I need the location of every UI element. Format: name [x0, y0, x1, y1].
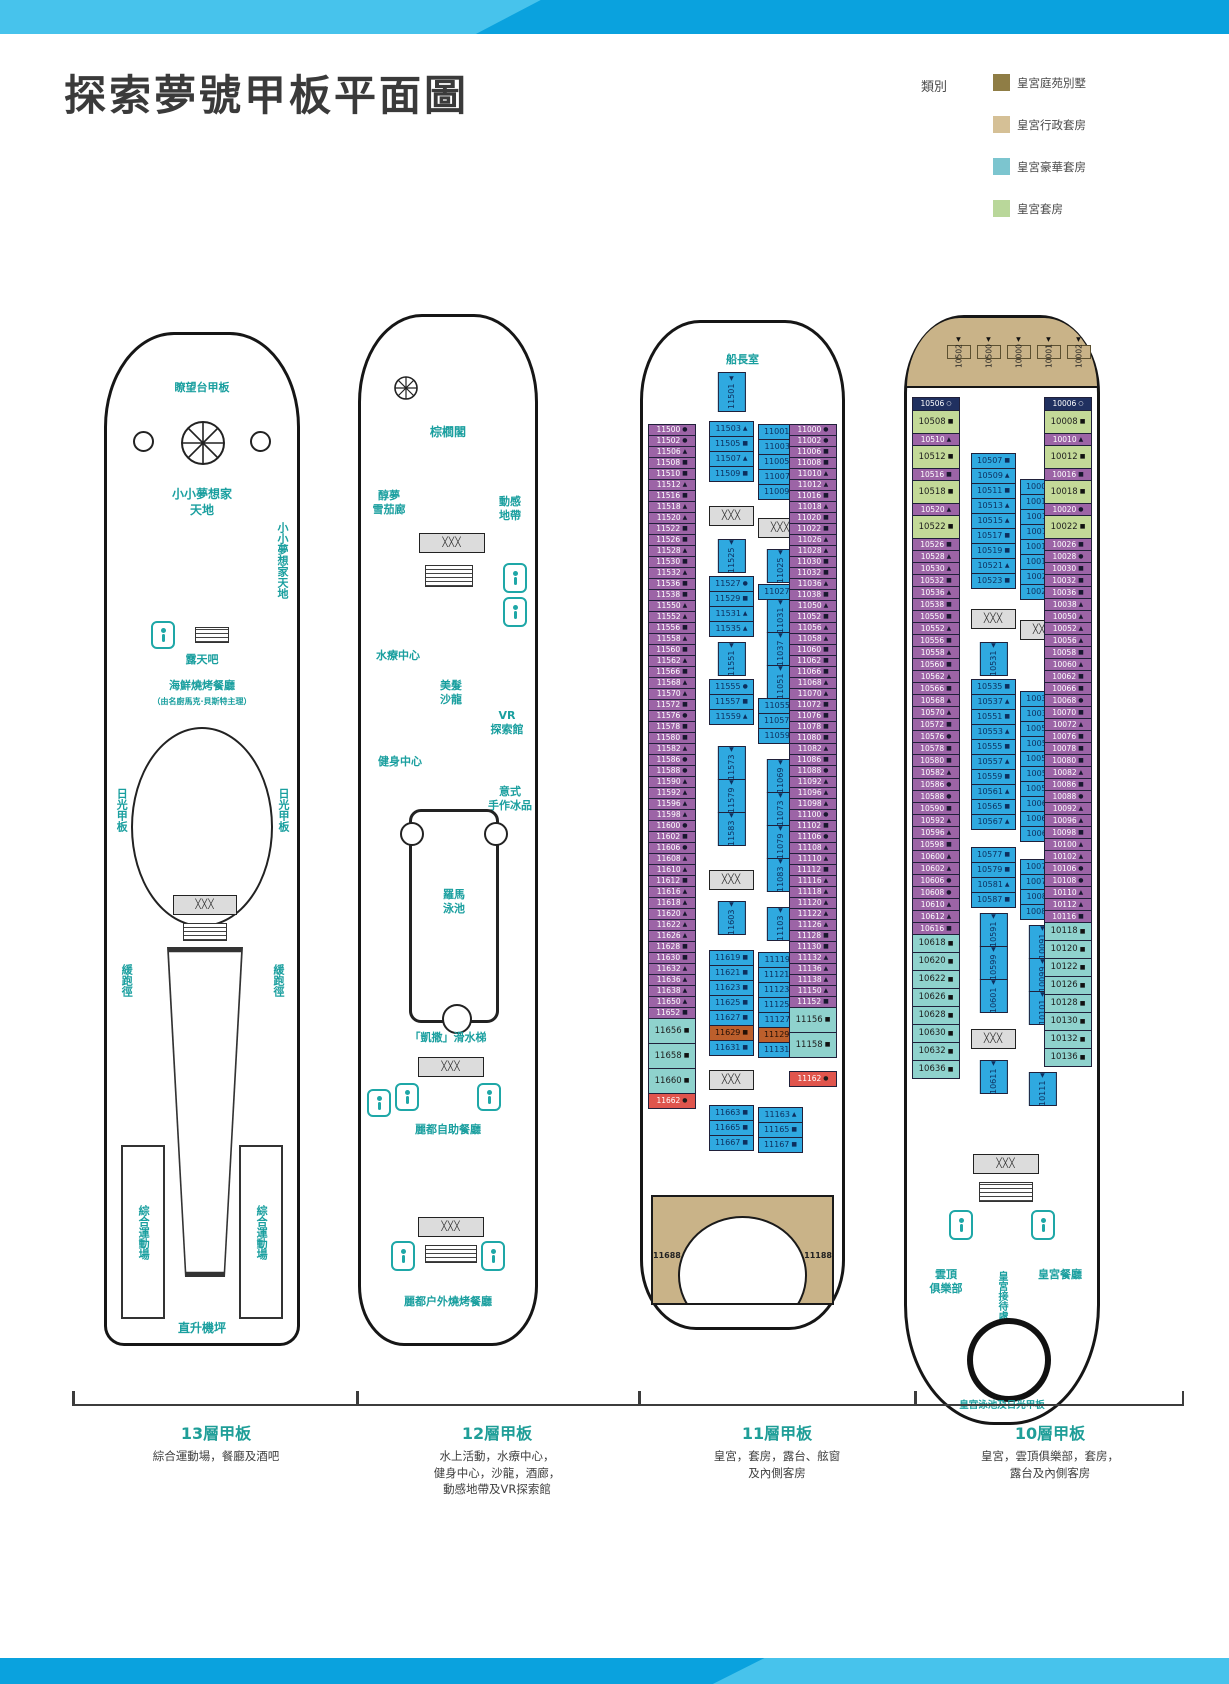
cabin-10591: 10591▲	[980, 913, 1008, 947]
cabin-number: 11163	[764, 1111, 789, 1119]
cabin-number: 11623	[715, 984, 740, 992]
cabin-number: 11612	[656, 877, 680, 885]
occupancy-symbol: ■	[823, 757, 829, 763]
helipad-label: 直升機坪	[107, 1321, 297, 1337]
cabin-number: 11600	[656, 822, 680, 830]
occupancy-symbol: ■	[1004, 548, 1010, 554]
genting-club-label: 雲頂 俱樂部	[917, 1268, 975, 1297]
cabin-11583: 11583▲	[718, 812, 746, 846]
occupancy-symbol: ■	[823, 823, 829, 829]
cabin-number: 10636	[919, 1065, 946, 1074]
occupancy-symbol: ▲	[824, 955, 829, 961]
occupancy-symbol: ●	[743, 581, 748, 587]
cabin-10507: 10507■	[971, 453, 1016, 469]
occupancy-symbol: ■	[823, 702, 829, 708]
captain-quarters-label: 船長室	[643, 353, 842, 367]
occupancy-symbol: ▲	[824, 900, 829, 906]
cabin-11656: 11656■	[648, 1018, 696, 1044]
sports-court-port: 綜合運動場	[121, 1145, 165, 1319]
occupancy-symbol: ▲	[1005, 503, 1010, 509]
occupancy-symbol: ■	[946, 638, 952, 644]
cabin-number: 10518	[919, 488, 946, 497]
cabin-number: 11505	[715, 440, 740, 448]
occupancy-symbol: ○	[946, 401, 951, 407]
occupancy-symbol: ●	[1078, 866, 1083, 872]
cabin-number: 11028	[798, 547, 822, 555]
occupancy-symbol: ▲	[743, 626, 748, 632]
palace-pool-outline	[967, 1318, 1051, 1402]
cabin-number: 11072	[797, 701, 821, 709]
cabin-number: 10068	[1052, 697, 1076, 705]
legend-swatch-villa	[993, 74, 1010, 91]
occupancy-symbol: ▲	[1079, 626, 1084, 632]
cabin-number: 11582	[657, 745, 681, 753]
cabin-number: 10535	[977, 683, 1002, 691]
occupancy-symbol: ●	[823, 812, 828, 818]
occupancy-symbol: ■	[823, 614, 829, 620]
cabin-11525: 11525▲	[718, 539, 746, 573]
occupancy-symbol: ■	[742, 471, 748, 477]
cabin-number: 11120	[798, 899, 822, 907]
cabin-number: 10102	[1053, 853, 1077, 861]
legend-swatch-palace-suite	[993, 200, 1010, 217]
occupancy-symbol: ■	[946, 472, 952, 478]
occupancy-symbol: ▲	[777, 858, 783, 865]
cabin-10515: 10515▲	[971, 513, 1016, 529]
occupancy-symbol: ■	[1078, 686, 1084, 692]
cabin-number: 10050	[1053, 613, 1077, 621]
occupancy-symbol: ■	[1078, 578, 1084, 584]
cabin-number: 11573	[727, 755, 735, 780]
cabin-number: 10520	[921, 506, 945, 514]
cabin-number: 11088	[797, 767, 821, 775]
occupancy-symbol: ▲	[947, 437, 952, 443]
compass-icon	[179, 419, 227, 467]
cabin-number: 10508	[919, 418, 946, 427]
cabin-number: 10076	[1052, 733, 1076, 741]
roman-pool-outline: 羅馬 泳池	[409, 809, 499, 1023]
cabin-10130: 10130■	[1044, 1012, 1092, 1031]
cabin-number: 11555	[715, 683, 740, 691]
cabin-number: 10112	[1053, 901, 1077, 909]
cabin-number: 11138	[798, 976, 822, 984]
occupancy-symbol: ▲	[1079, 806, 1084, 812]
cabin-number: 11055	[764, 702, 789, 710]
cabin-number: 11658	[655, 1052, 682, 1061]
occupancy-symbol: ■	[742, 1000, 748, 1006]
occupancy-symbol: ▲	[728, 642, 734, 649]
occupancy-symbol: ■	[682, 537, 688, 543]
cabin-number: 10580	[920, 757, 944, 765]
cabin-number: 10012	[1051, 453, 1078, 462]
cabin-number: 11073	[776, 801, 784, 826]
accessible-restroom-icon	[477, 1083, 501, 1111]
cabin-number: 10590	[920, 805, 944, 813]
legend-item: 皇宮豪華套房	[993, 158, 1086, 175]
cabin-11165: 11165■	[758, 1122, 803, 1138]
stairs	[195, 627, 229, 643]
occupancy-symbol: ●	[682, 427, 687, 433]
occupancy-symbol: ●	[1078, 878, 1083, 884]
cabin-number: 10606	[920, 877, 944, 885]
occupancy-symbol: ▲	[683, 922, 688, 928]
cabin-number: 10632	[919, 1047, 946, 1056]
occupancy-symbol: ●	[682, 845, 687, 851]
cabin-number: 11586	[656, 756, 680, 764]
cabin-number: 10530	[921, 565, 945, 573]
occupancy-symbol: ■	[1004, 804, 1010, 810]
cabin-number: 10066	[1052, 685, 1076, 693]
occupancy-symbol: ▲	[947, 650, 952, 656]
cabin-number: 10512	[919, 453, 946, 462]
occupancy-symbol: ▲	[990, 1060, 996, 1067]
cabin-number: 11008	[797, 459, 821, 467]
cabin-number: 11076	[797, 712, 821, 720]
occupancy-symbol: ▲	[683, 482, 688, 488]
occupancy-symbol: ▲	[824, 977, 829, 983]
occupancy-symbol: ▲	[683, 636, 688, 642]
occupancy-symbol: ▲	[1079, 602, 1084, 608]
deck-12-name: 12層甲板	[434, 1420, 561, 1444]
occupancy-symbol: ■	[1078, 734, 1084, 740]
cabin-number: 11125	[764, 1001, 789, 1009]
corridor-gap	[971, 830, 1016, 848]
occupancy-symbol: ■	[948, 1049, 954, 1055]
occupancy-symbol: ■	[946, 842, 952, 848]
occupancy-symbol: ■	[948, 454, 954, 460]
cabin-number: 10611	[989, 1069, 997, 1094]
corridor-gap	[971, 418, 1016, 454]
cabin-number: 10538	[920, 601, 944, 609]
occupancy-symbol: ▲	[947, 902, 952, 908]
occupancy-symbol: ▲	[683, 614, 688, 620]
cabin-number: 10528	[921, 553, 945, 561]
occupancy-symbol: ■	[823, 669, 829, 675]
cabin-number: 10082	[1053, 769, 1077, 777]
cabin-number: 11100	[797, 811, 821, 819]
occupancy-symbol: ▲	[990, 946, 996, 953]
cabin-number: 10132	[1051, 1035, 1078, 1044]
top-brand-band	[0, 0, 1229, 34]
jogging-track-label-starboard: 緩跑徑	[271, 935, 285, 1025]
occupancy-symbol: ■	[823, 933, 829, 939]
cabin-number: 11009	[764, 488, 789, 496]
roman-pool-label: 羅馬 泳池	[412, 888, 496, 917]
occupancy-symbol: ■	[823, 559, 829, 565]
cabin-11527: 11527●	[709, 576, 754, 592]
occupancy-symbol: ●	[1078, 698, 1083, 704]
cabin-number: 10056	[1053, 637, 1077, 645]
cabin-10120: 10120■	[1044, 940, 1092, 959]
occupancy-symbol: ■	[1004, 533, 1010, 539]
occupancy-symbol: ▲	[777, 549, 783, 556]
occupancy-symbol: ▲	[1016, 335, 1022, 342]
deck11-inner-port-cabin-column: 11501▲11503▲11505■11507▲11509■╳╳╳11525▲1…	[709, 373, 754, 1151]
cabin-number: 11022	[797, 525, 821, 533]
occupancy-symbol: ■	[1080, 965, 1086, 971]
occupancy-symbol: ●	[1078, 507, 1083, 513]
spa-label: 水療中心	[367, 649, 429, 663]
cabin-number: 11606	[656, 844, 680, 852]
cabin-number: 10601	[989, 988, 997, 1013]
occupancy-symbol: ▲	[824, 845, 829, 851]
legend-swatch-deluxe-suite	[993, 158, 1010, 175]
cabin-number: 10010	[1053, 436, 1077, 444]
cabin-10136: 10136■	[1044, 1048, 1092, 1067]
occupancy-symbol: ▲	[990, 642, 996, 649]
cabin-number: 10018	[1051, 488, 1078, 497]
cabin-11156: 11156■	[789, 1007, 837, 1033]
cabin-number: 11025	[776, 558, 784, 583]
occupancy-symbol: ▲	[1079, 854, 1084, 860]
occupancy-symbol: ▲	[683, 889, 688, 895]
occupancy-symbol: ■	[948, 1013, 954, 1019]
restroom-icon	[151, 621, 175, 649]
cabin-10599: 10599▲	[980, 946, 1008, 980]
occupancy-symbol: ▲	[947, 914, 952, 920]
occupancy-symbol: ▲	[947, 854, 952, 860]
caesar-slide-label: 「凱撒」滑水梯	[361, 1031, 535, 1045]
cabin-number: 11150	[798, 987, 822, 995]
corridor-gap	[789, 1058, 837, 1072]
cabin-10553: 10553▲	[971, 724, 1016, 740]
cabin-number: 10116	[1052, 913, 1076, 921]
cabin-number: 11526	[656, 536, 680, 544]
cabin-number: 11102	[797, 822, 821, 830]
cabin-number: 10110	[1053, 889, 1077, 897]
occupancy-symbol: ■	[742, 699, 748, 705]
cabin-number: 11152	[797, 998, 821, 1006]
cabin-number: 11116	[798, 877, 822, 885]
deck11-starboard-cabin-column: 11000●11002●11006■11008■11010▲11012▲1101…	[789, 425, 837, 1087]
cabin-11531: 11531▲	[709, 606, 754, 622]
cabin-number: 10062	[1052, 673, 1076, 681]
cabin-11665: 11665■	[709, 1120, 754, 1136]
cabin-number: 10586	[920, 781, 944, 789]
cabin-number: 10122	[1051, 963, 1078, 972]
cabin-number: 11508	[656, 459, 680, 467]
occupancy-symbol: ■	[742, 985, 748, 991]
cabin-number: 11501	[727, 384, 735, 409]
palm-court-label: 棕櫚閣	[361, 425, 535, 441]
cabin-number: 11566	[656, 668, 680, 676]
cabin-number: 11656	[655, 1027, 682, 1036]
occupancy-symbol: ■	[1004, 458, 1010, 464]
cabin-10518: 10518■	[912, 480, 960, 504]
legend-item-label: 皇宮庭苑別墅	[1017, 75, 1086, 91]
occupancy-symbol: ●	[946, 782, 951, 788]
occupancy-symbol: ▲	[743, 714, 748, 720]
occupancy-symbol: ▲	[777, 632, 783, 639]
cabin-number: 11660	[655, 1077, 682, 1086]
cabin-number: 11052	[797, 613, 821, 621]
occupancy-symbol: ▲	[1079, 662, 1084, 668]
stern-cabin-label: 11688	[653, 1251, 681, 1260]
open-air-bar-label: 露天吧	[107, 653, 297, 667]
cabin-10555: 10555■	[971, 739, 1016, 755]
cabin-number: 11056	[798, 624, 822, 632]
cabin-number: 11650	[657, 998, 681, 1006]
occupancy-symbol: ●	[823, 427, 828, 433]
deck-13-caption: 13層甲板 綜合運動場，餐廳及酒吧	[153, 1420, 280, 1465]
cabin-10513: 10513▲	[971, 498, 1016, 514]
cabin-number: 10008	[1051, 418, 1078, 427]
cabin-number: 10592	[921, 817, 945, 825]
gym-label: 健身中心	[367, 755, 433, 769]
occupancy-symbol: ■	[742, 1030, 748, 1036]
cabin-number: 11559	[715, 713, 740, 721]
cabin-number: 10526	[920, 541, 944, 549]
cabin-10502: 10502▲	[947, 345, 971, 359]
seafood-grill-subtitle: （由名廚馬克·貝斯特主理）	[107, 697, 297, 707]
occupancy-symbol: ▲	[728, 812, 734, 819]
elevator-bank: ╳╳╳	[709, 506, 754, 526]
deck10-port-cabin-column: 10506○10508■10510▲10512■10516■10518■1052…	[912, 398, 960, 1079]
cabin-10122: 10122■	[1044, 958, 1092, 977]
legend-category-label: 類別	[921, 76, 947, 95]
deck-12-plan: 棕櫚閣 醇夢 雪茄廊 動感 地帶 ╳╳╳ 水療中心 美髮 沙龍 VR 探索館 健…	[358, 314, 538, 1346]
cabin-number: 11502	[656, 437, 680, 445]
cabin-number: 11622	[657, 921, 681, 929]
cabin-number: 10536	[921, 589, 945, 597]
cabin-number: 10500	[985, 344, 993, 368]
cabin-10587: 10587■	[971, 892, 1016, 908]
elevator-bank: ╳╳╳	[973, 1154, 1039, 1174]
occupancy-symbol: ▲	[824, 636, 829, 642]
occupancy-symbol: ▲	[824, 889, 829, 895]
cabin-number: 11619	[715, 954, 740, 962]
restroom-icon	[503, 563, 527, 593]
occupancy-symbol: ■	[948, 941, 954, 947]
occupancy-symbol: ■	[946, 602, 952, 608]
cabin-11507: 11507▲	[709, 451, 754, 467]
cabin-number: 11583	[727, 821, 735, 846]
cabin-10636: 10636■	[912, 1060, 960, 1079]
cabin-number: 11598	[657, 811, 681, 819]
occupancy-symbol: ■	[1080, 419, 1086, 425]
cabin-number: 11572	[656, 701, 680, 709]
cabin-number: 10522	[919, 523, 946, 532]
cabin-number: 11527	[715, 580, 740, 588]
cabin-number: 10565	[977, 803, 1002, 811]
occupancy-symbol: ■	[823, 570, 829, 576]
cabin-number: 11069	[776, 768, 784, 793]
cabin-10500: 10500▲	[977, 345, 1001, 359]
occupancy-symbol: ▲	[777, 825, 783, 832]
little-dreamers-vertical-label: 小小夢想家天地	[275, 475, 289, 645]
occupancy-symbol: ■	[825, 1017, 831, 1023]
cabin-number: 11000	[797, 426, 821, 434]
cabin-number: 11165	[764, 1126, 789, 1134]
cabin-number: 10507	[977, 457, 1002, 465]
occupancy-symbol: ▲	[777, 792, 783, 799]
occupancy-symbol: ■	[684, 1053, 690, 1059]
cabin-number: 11529	[715, 595, 740, 603]
cabin-number: 10561	[977, 788, 1002, 796]
deck-10-name: 10層甲板	[981, 1420, 1119, 1444]
cabin-number: 10136	[1051, 1053, 1078, 1062]
cabin-number: 10511	[977, 487, 1002, 495]
cabin-11505: 11505■	[709, 436, 754, 452]
cabin-number: 11118	[798, 888, 822, 896]
cabin-number: 10628	[919, 1011, 946, 1020]
deck-12-desc: 水上活動，水療中心， 健身中心，沙龍，酒廊， 動感地帶及VR探索館	[434, 1448, 561, 1498]
cabin-11529: 11529■	[709, 591, 754, 607]
lido-buffet-label: 麗都自助餐廳	[361, 1123, 535, 1137]
cabin-number: 10557	[977, 758, 1002, 766]
cabin-number: 10551	[977, 713, 1002, 721]
bow-villa-band: 10502▲10500▲10000▲10001▲10002▲	[907, 318, 1097, 388]
cabin-number: 11070	[798, 690, 822, 698]
cabin-number: 11037	[776, 641, 784, 666]
legend-item-label: 皇宮豪華套房	[1017, 159, 1086, 175]
occupancy-symbol: ■	[682, 625, 688, 631]
restroom-icon	[1031, 1210, 1055, 1240]
occupancy-symbol: ■	[682, 559, 688, 565]
occupancy-symbol: ▲	[947, 626, 952, 632]
occupancy-symbol: ▲	[683, 812, 688, 818]
cabin-number: 11092	[798, 778, 822, 786]
cabin-number: 11652	[656, 1009, 680, 1017]
cabin-number: 11662	[656, 1097, 680, 1105]
cabin-number: 10579	[977, 866, 1002, 874]
cabin-number: 10587	[977, 896, 1002, 904]
occupancy-symbol: ■	[742, 1110, 748, 1116]
restroom-icon	[503, 597, 527, 627]
skylight-icon	[133, 431, 154, 452]
spiral-stair-icon	[393, 375, 419, 401]
cabin-number: 11550	[657, 602, 681, 610]
cabin-number: 11631	[715, 1044, 740, 1052]
cabin-10126: 10126■	[1044, 976, 1092, 995]
occupancy-symbol: ▲	[947, 866, 952, 872]
cabin-10521: 10521▲	[971, 558, 1016, 574]
restroom-icon	[481, 1241, 505, 1271]
occupancy-symbol: ▲	[1005, 759, 1010, 765]
corridor-gap	[709, 1056, 754, 1070]
cabin-number: 10058	[1052, 649, 1076, 657]
cabin-number: 11608	[657, 855, 681, 863]
occupancy-symbol: ▲	[743, 456, 748, 462]
legend-item: 皇宮行政套房	[993, 116, 1086, 133]
cabin-number: 11663	[715, 1109, 740, 1117]
cabin-number: 10030	[1052, 565, 1076, 573]
cabin-number: 11129	[764, 1031, 789, 1039]
occupancy-symbol: ■	[1080, 1001, 1086, 1007]
cabin-number: 10513	[977, 502, 1002, 510]
cabin-number: 11031	[776, 608, 784, 633]
occupancy-symbol: ▲	[683, 801, 688, 807]
cabin-number: 10558	[921, 649, 945, 657]
jogging-track-label-port: 緩跑徑	[119, 935, 133, 1025]
occupancy-symbol: ▲	[1005, 729, 1010, 735]
occupancy-symbol: ●	[946, 890, 951, 896]
occupancy-symbol: ▲	[683, 570, 688, 576]
cabin-number: 10510	[921, 436, 945, 444]
cabin-number: 10126	[1051, 981, 1078, 990]
occupancy-symbol: ▲	[683, 999, 688, 1005]
cabin-number: 11127	[764, 1016, 789, 1024]
cabin-number: 10509	[977, 472, 1002, 480]
occupancy-symbol: ■	[682, 493, 688, 499]
cabin-number: 11128	[797, 932, 821, 940]
cabin-number: 10568	[921, 697, 945, 705]
cabin-number: 10060	[1053, 661, 1077, 669]
occupancy-symbol: ▲	[683, 900, 688, 906]
occupancy-symbol: ■	[1080, 1055, 1086, 1061]
cabin-number: 11110	[798, 855, 822, 863]
cabin-number: 11156	[796, 1016, 823, 1025]
